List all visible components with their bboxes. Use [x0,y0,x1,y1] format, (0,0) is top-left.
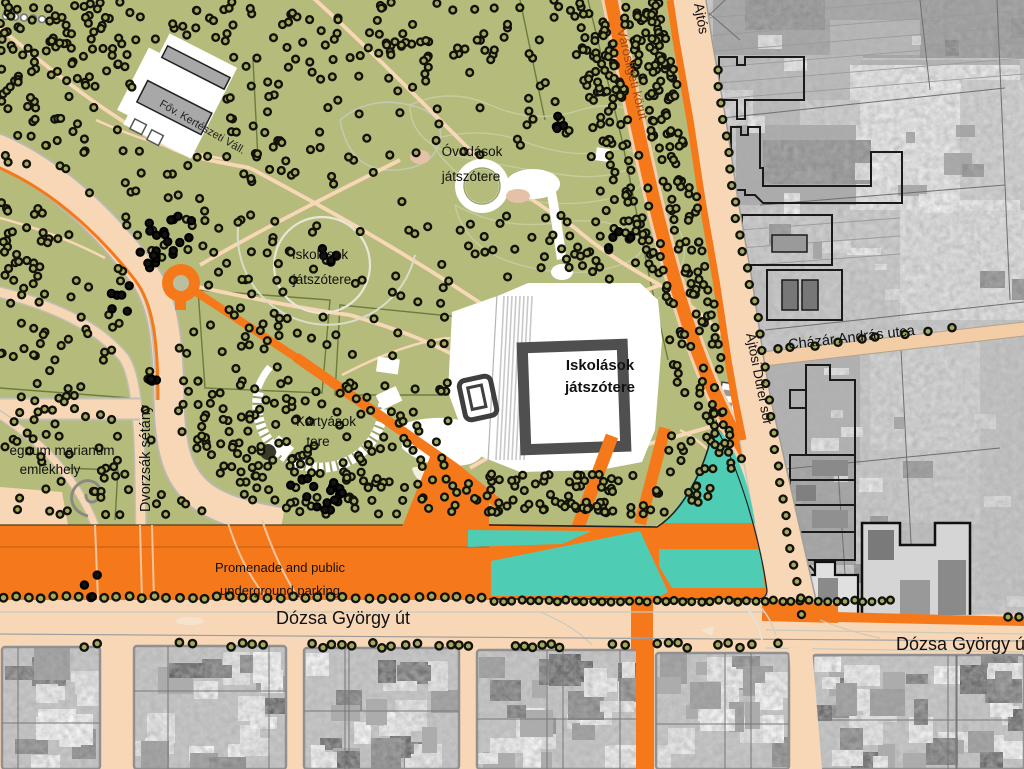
svg-text:Promenade and public: Promenade and public [215,560,346,575]
svg-text:játszótere: játszótere [292,272,352,287]
svg-text:tere: tere [306,434,329,449]
svg-text:underground parking: underground parking [220,583,340,598]
svg-text:játszótere: játszótere [441,169,501,184]
svg-text:Iskolások: Iskolások [566,357,635,374]
svg-text:Iskolások: Iskolások [292,247,349,262]
svg-text:Dózsa György út: Dózsa György út [276,608,410,628]
svg-text:Óvodások: Óvodások [442,144,503,159]
svg-text:Dvorzsák sétány: Dvorzsák sétány [138,404,154,512]
svg-text:emlékhely: emlékhely [20,462,81,477]
svg-text:Dózsa György út: Dózsa György út [896,634,1024,654]
svg-text:Kártyások: Kártyások [296,414,356,429]
svg-text:egnum marianum: egnum marianum [9,443,114,458]
svg-text:játszótere: játszótere [564,379,635,396]
